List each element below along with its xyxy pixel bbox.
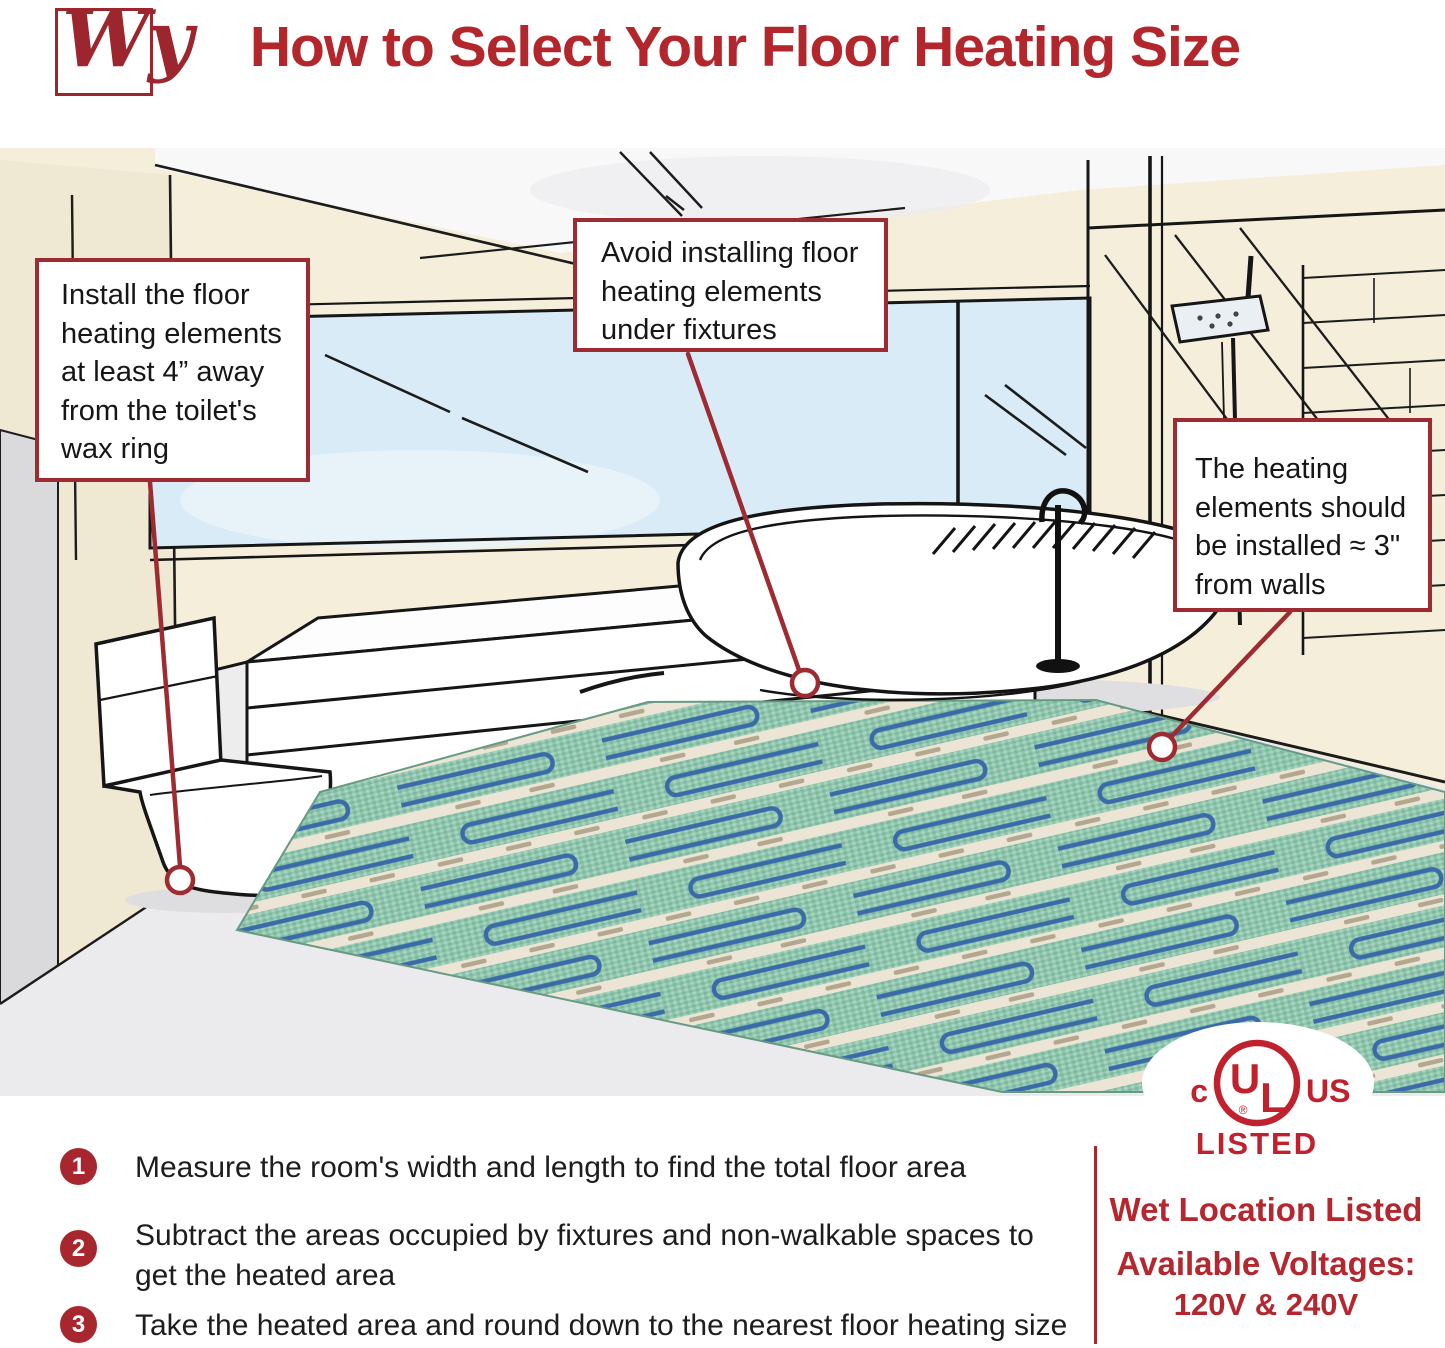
- wall-panel: [0, 430, 58, 1012]
- brand-logo-letters: Wy: [62, 0, 193, 83]
- bottom-section-divider: [1094, 1146, 1097, 1344]
- callout-toilet-clearance: Install the floor heating elements at le…: [35, 258, 310, 482]
- ul-letter-u: U: [1230, 1055, 1260, 1102]
- wet-location-label: Wet Location Listed: [1100, 1192, 1432, 1228]
- brand-logo: Wy: [55, 8, 153, 96]
- voltages-label: Available Voltages:: [1100, 1246, 1432, 1282]
- step-row-1: 1 Measure the room's width and length to…: [60, 1148, 1070, 1188]
- certification-text-block: Wet Location Listed Available Voltages: …: [1100, 1192, 1432, 1323]
- callout-wall-clearance: The heating elements should be installed…: [1173, 418, 1432, 612]
- page-title: How to Select Your Floor Heating Size: [45, 14, 1445, 80]
- step-2-text: Subtract the areas occupied by fixtures …: [135, 1216, 1034, 1296]
- ul-listed-label: LISTED: [1196, 1126, 1318, 1161]
- ul-registered-symbol: ®: [1239, 1103, 1248, 1117]
- toilet-marker: [167, 867, 193, 893]
- step-row-2: 2 Subtract the areas occupied by fixture…: [60, 1216, 1100, 1296]
- wall-marker: [1149, 734, 1175, 760]
- infographic-page: Wy How to Select Your Floor Heating Size: [0, 0, 1445, 1348]
- step-1-badge: 1: [60, 1148, 97, 1185]
- step-3-text: Take the heated area and round down to t…: [135, 1306, 1067, 1346]
- ul-letter-l: L: [1260, 1074, 1286, 1121]
- callout-avoid-fixtures: Avoid installing floor heating elements …: [573, 218, 888, 352]
- step-1-text: Measure the room's width and length to f…: [135, 1148, 966, 1188]
- step-2-badge: 2: [60, 1230, 97, 1267]
- ul-prefix-c: c: [1190, 1073, 1208, 1109]
- ul-listed-mark: U L ® c US LISTED: [1130, 1005, 1410, 1175]
- step-3-badge: 3: [60, 1306, 97, 1343]
- shower-head-stem: [1248, 256, 1251, 298]
- ceiling-shading: [530, 156, 990, 224]
- voltages-value: 120V & 240V: [1100, 1287, 1432, 1323]
- ul-suffix-us: US: [1306, 1073, 1350, 1109]
- tub-marker: [792, 670, 818, 696]
- step-row-3: 3 Take the heated area and round down to…: [60, 1306, 1100, 1346]
